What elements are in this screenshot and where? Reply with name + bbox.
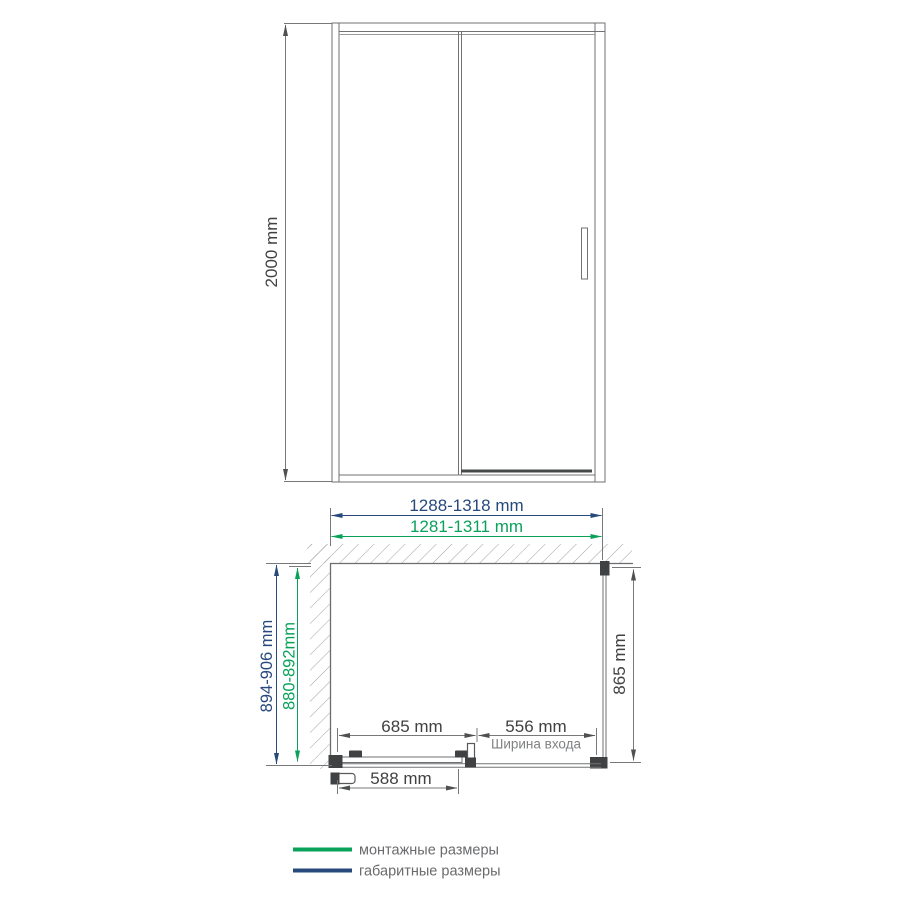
label-door-panel-width: 588 mm [370,769,431,788]
plan-view [307,544,633,785]
label-fixed-section: 685 mm [381,717,442,736]
label-entry-width: 556 mm [505,717,566,736]
label-side-panel-depth: 865 mm [610,633,629,694]
elevation-outer-frame [332,23,605,482]
drawing-page: 2000 mm 1288-1318 mm 1281-1311 mm [0,0,900,900]
wall-profile-clamp [329,755,343,768]
legend: монтажные размеры габаритные размеры [293,843,501,880]
door-handle [582,228,588,279]
door-handle-bracket [465,758,476,768]
side-panel-wall-bracket [600,561,610,576]
door-roller-left [349,751,362,758]
wall-hatch-left [310,544,330,769]
label-overall-width: 1288-1318 mm [409,496,523,515]
adjuster-cap [331,773,340,785]
front-elevation-view [332,23,605,482]
label-mounting-width: 1281-1311 mm [410,517,523,536]
sliding-door-panel [340,757,462,763]
legend-label-overall: габаритные размеры [359,864,501,880]
side-panel-dimension: 865 mm [610,568,641,763]
elevation-height-dimension: 2000 mm [262,24,332,482]
label-entry-caption: Ширина входа [491,737,582,752]
label-mounting-depth: 880-892mm [281,622,299,710]
door-roller-right [455,751,468,758]
wall-hatch-top [307,544,632,563]
label-overall-depth: 894-906 mm [258,620,276,713]
legend-label-mounting: монтажные размеры [359,843,499,859]
label-elevation-height: 2000 mm [262,217,281,288]
shower-enclosure-technical-drawing: 2000 mm 1288-1318 mm 1281-1311 mm [0,0,900,900]
